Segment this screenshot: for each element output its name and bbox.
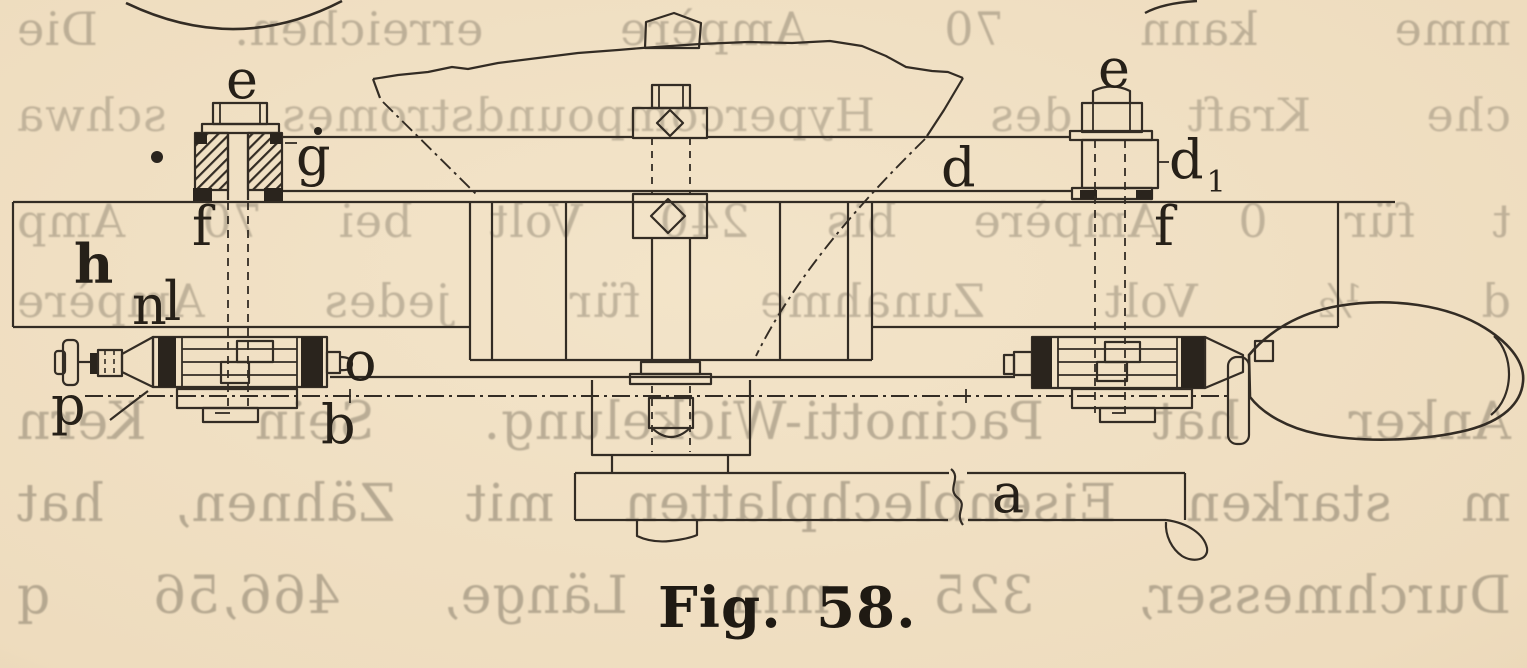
part-label-f-right: f xyxy=(1154,200,1174,254)
part-label-n: n xyxy=(132,279,167,333)
handle-guard-disc xyxy=(1228,357,1249,444)
upper-plate-torn-edge xyxy=(373,13,963,136)
part-label-d: d xyxy=(941,141,976,195)
part-label-g: g xyxy=(296,130,331,184)
torn-flap xyxy=(1166,520,1207,560)
right-adjuster-assembly xyxy=(1004,302,1523,444)
hanging-tab xyxy=(637,521,697,541)
part-label-p: p xyxy=(51,379,86,433)
part-label-d1: d1 xyxy=(1169,133,1226,198)
part-label-o: o xyxy=(344,335,377,389)
part-label-e-left: e xyxy=(226,53,258,107)
part-label-e-right: e xyxy=(1098,42,1130,96)
wooden-handle xyxy=(1249,302,1523,439)
scanned-book-page: mme kann 70 Ampère erreichen. Die che Kr… xyxy=(0,0,1527,668)
part-label-b: b xyxy=(321,398,356,452)
figure-caption: Fig. 58. xyxy=(658,580,917,636)
break-squiggle xyxy=(951,469,963,525)
ink-dot xyxy=(151,151,163,163)
projection-lines xyxy=(383,102,925,356)
part-label-a: a xyxy=(992,467,1024,521)
part-label-d1-subscript: 1 xyxy=(1207,165,1226,200)
part-label-f-left: f xyxy=(192,200,212,254)
left-adjuster-assembly xyxy=(55,337,352,422)
part-label-l: l xyxy=(164,275,181,329)
part-label-h: h xyxy=(74,237,113,291)
shaft-key-block xyxy=(645,13,701,48)
center-shaft-assembly xyxy=(630,85,711,452)
cropped-circle-arcs xyxy=(126,1,1197,29)
